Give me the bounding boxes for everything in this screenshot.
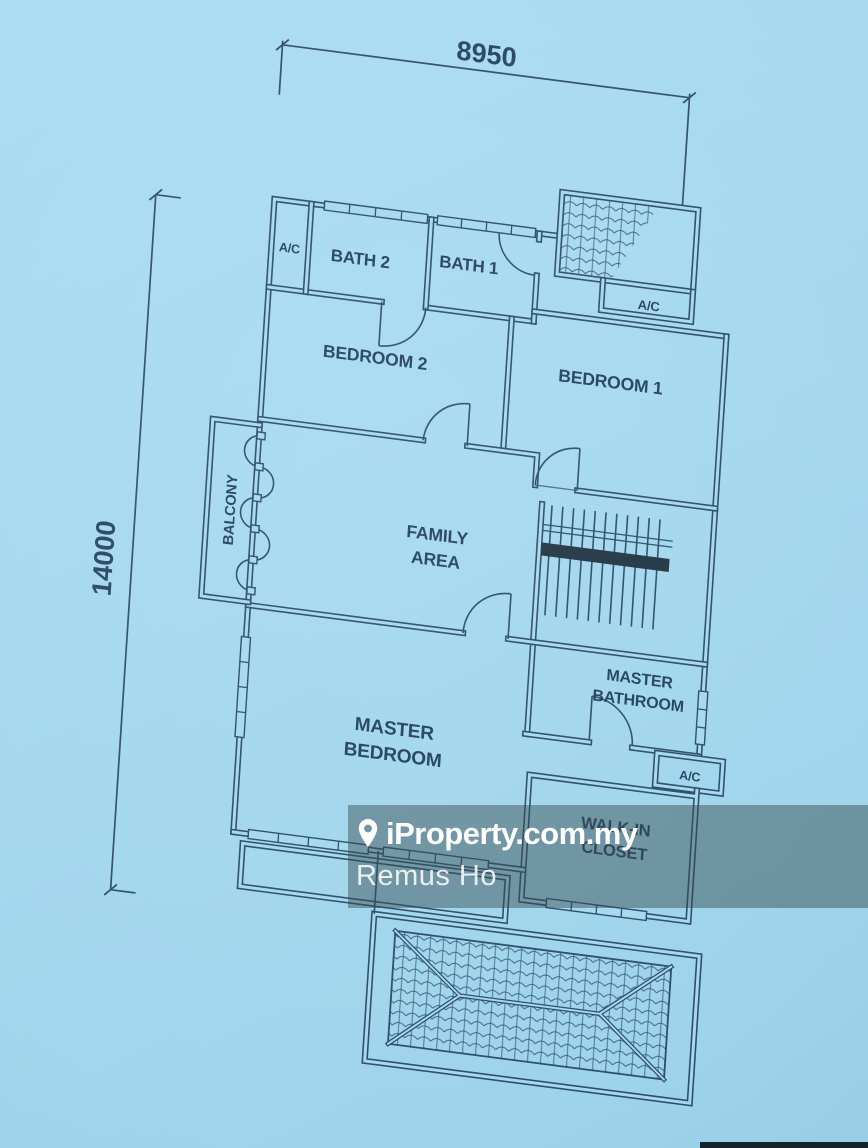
- watermark-band: iProperty.com.my Remus Ho: [348, 805, 868, 908]
- room-label-ac-bottom-right: A/C: [679, 768, 701, 785]
- room-label-ac-top-left: A/C: [279, 240, 301, 257]
- photo-bottom-edge-bar: [700, 1142, 868, 1148]
- stairs-handrail: [541, 542, 670, 572]
- room-label-balcony: BALCONY: [221, 473, 242, 546]
- room-label-bedroom1: BEDROOM 1: [558, 365, 664, 398]
- watermark-agent-label: Remus Ho: [356, 860, 868, 893]
- room-label-bedroom2: BEDROOM 2: [322, 341, 428, 374]
- room-label-master-bedroom-1: MASTER: [354, 714, 435, 745]
- watermark-brand-label: iProperty.com.my: [386, 818, 638, 849]
- dimension-left-label: 14000: [86, 518, 122, 597]
- dimension-top-label: 8950: [456, 34, 518, 73]
- room-label-bath2: BATH 2: [330, 246, 390, 273]
- stairs: [537, 504, 674, 631]
- room-label-bath1: BATH 1: [439, 252, 500, 279]
- dimension-left: 14000: [66, 183, 181, 899]
- room-label-family-1: FAMILY: [406, 521, 469, 549]
- watermark-brand-row: iProperty.com.my: [356, 815, 868, 851]
- terrace-hip-roof: [388, 931, 671, 1080]
- room-label-family-2: AREA: [411, 547, 462, 573]
- dimension-top: 8950: [269, 11, 697, 206]
- room-label-ac-top-right: A/C: [637, 297, 660, 315]
- floorplan-drawing: 8950 14000: [0, 0, 868, 1148]
- location-pin-icon: [356, 818, 380, 848]
